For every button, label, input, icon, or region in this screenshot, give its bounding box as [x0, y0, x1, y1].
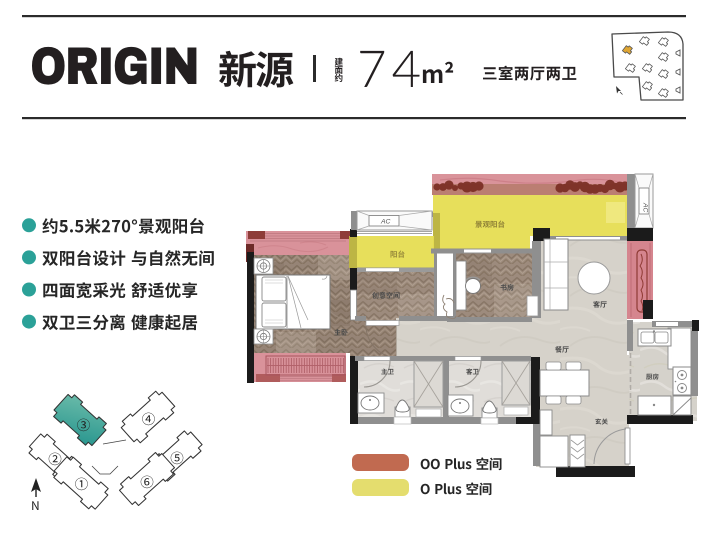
svg-text:AC: AC	[380, 219, 391, 226]
svg-text:AC: AC	[642, 202, 649, 213]
